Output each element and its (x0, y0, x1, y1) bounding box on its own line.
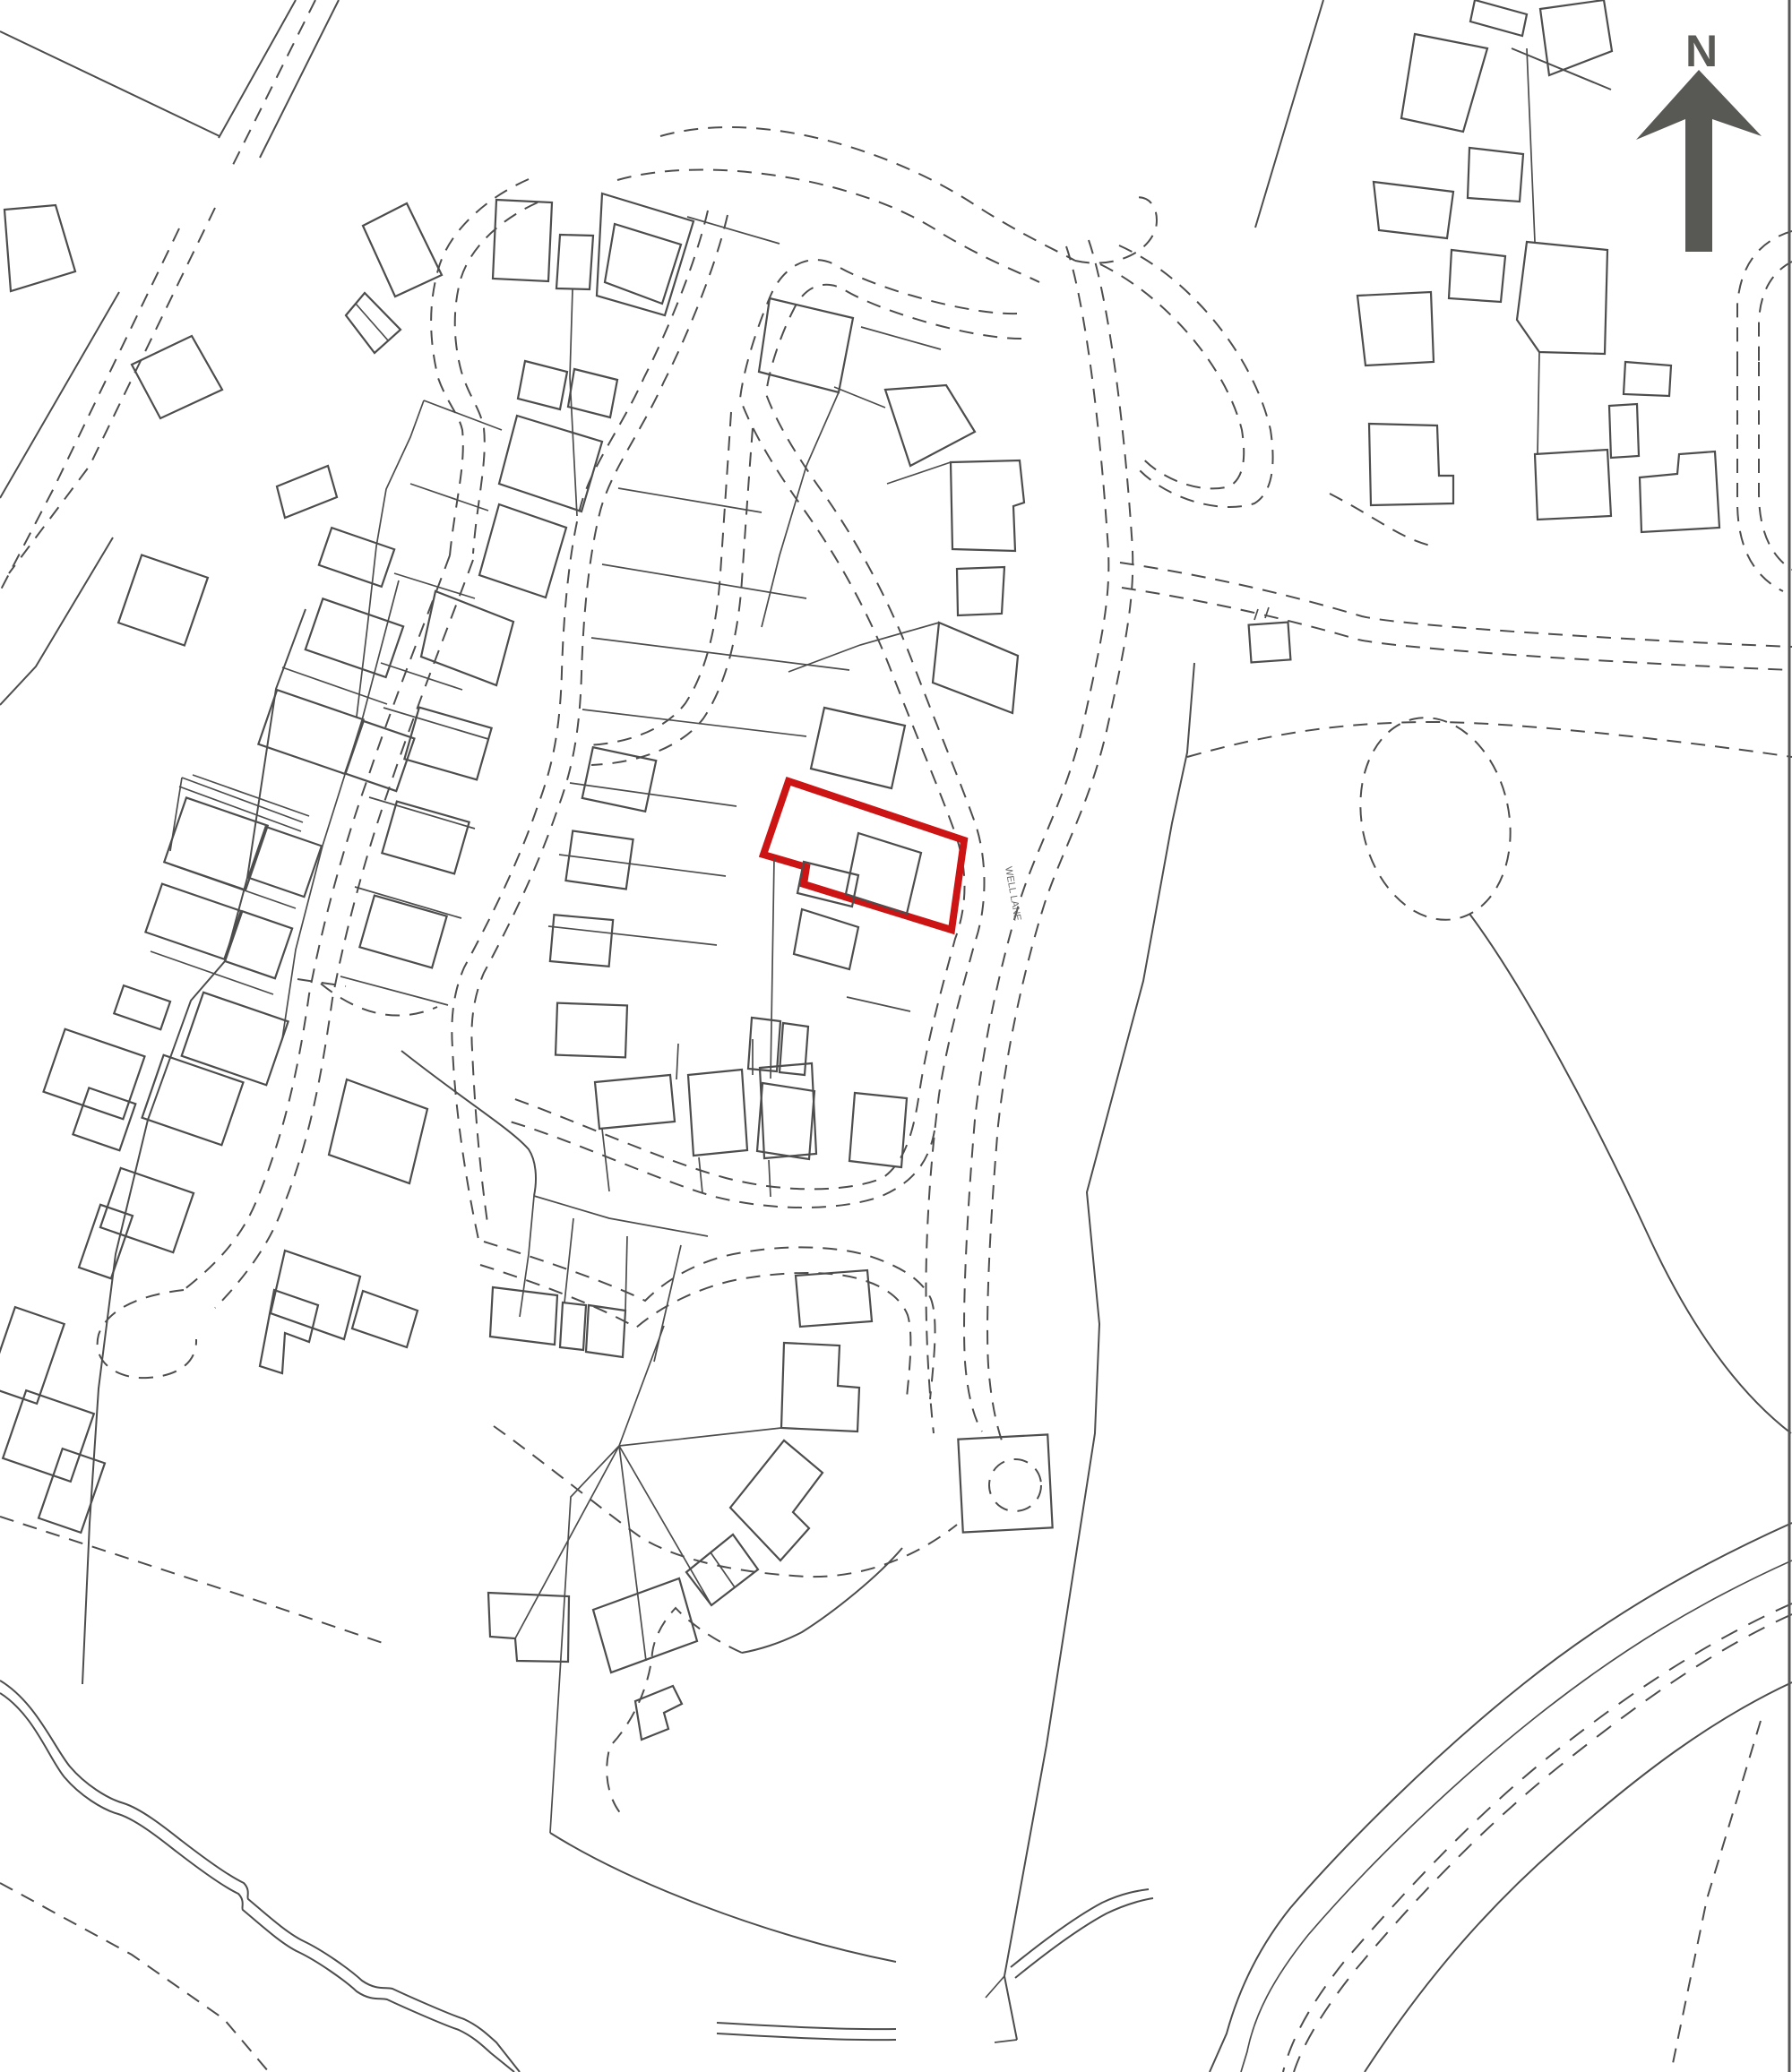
svg-text:N: N (1685, 26, 1718, 76)
